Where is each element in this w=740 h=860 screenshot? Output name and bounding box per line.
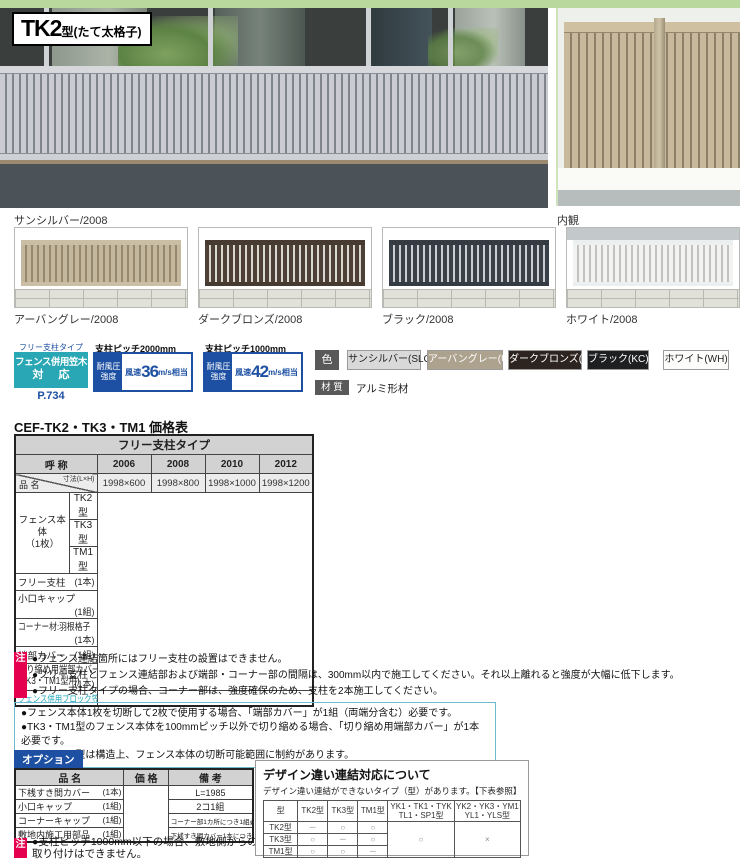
fence-body-label: フェンス本体（1枚）	[15, 493, 69, 574]
block-wall	[15, 289, 187, 307]
block-wall	[567, 289, 739, 307]
size-cell: 1998×600	[97, 474, 151, 493]
item-row: 小口キャップ(1組)	[15, 591, 97, 619]
main-photo-caption: サンシルバー/2008	[14, 212, 108, 228]
note-line: ●フリー支柱タイプの場合、コーナー部は、強度確保のため、支柱を2本施工してくださ…	[32, 684, 732, 700]
color-row-label: 色	[315, 350, 339, 370]
dp-cell: －	[328, 834, 358, 846]
interior-concrete-base	[558, 190, 740, 206]
block-wall	[383, 289, 555, 307]
variant-fence	[21, 240, 181, 286]
variant-photo-urban-grey	[14, 227, 188, 308]
opt-header: 品 名	[15, 769, 124, 786]
color-chip-sun-silver: サンシルバー(SLC)	[347, 350, 421, 370]
name-header: 呼 称	[15, 455, 97, 474]
page-reference: P.734	[14, 390, 88, 402]
item-row: コーナー材:羽根格子(1本)	[15, 619, 97, 647]
color-chip-black: ブラック(KC)	[587, 350, 649, 370]
col-header: 2012	[259, 455, 313, 474]
note-badge: 注	[14, 838, 27, 858]
interior-fence-post	[654, 18, 665, 186]
fence-post	[208, 8, 213, 74]
product-title-badge: TK2型(たて太格子)	[12, 12, 152, 46]
size-header: 寸法(L×H)	[63, 474, 95, 484]
main-product-photo: TK2型(たて太格子)	[0, 8, 548, 208]
material-row-label: 材 質	[315, 380, 349, 395]
catalog-page: TK2型(たて太格子) サンシルバー/2008 内観 アーバングレー/2008 …	[0, 0, 740, 860]
note-badge: 注	[14, 652, 27, 698]
free-post-type-header: フリー支柱タイプ	[15, 435, 313, 455]
vertical-lattice-fence	[0, 66, 548, 160]
dp-merged-cell: ○	[388, 822, 454, 858]
design-panel-title: デザイン違い連結対応について	[263, 766, 521, 783]
variant-caption: ホワイト/2008	[566, 311, 638, 327]
dp-merged-cell: ×	[454, 822, 520, 858]
opt-row-name: コーナーキャップ(1組)	[15, 814, 124, 828]
variant-fence	[205, 240, 365, 286]
variant-fence	[389, 240, 549, 286]
dp-col-header-wide: YK2・YK3・YM1YL1・YLS型	[454, 801, 520, 822]
fence-post	[448, 8, 453, 74]
wind-resistance-title: 耐風圧強度	[205, 354, 232, 390]
item-size-corner-cell: 品 名 寸法(L×H)	[15, 474, 97, 493]
primary-notes: ●フェンス連結箇所にはフリー支柱の設置はできません。 ●フリー支柱とフェンス連結…	[32, 652, 732, 700]
fence-type-cell: TK3型	[69, 520, 97, 547]
col-header: 2008	[151, 455, 205, 474]
size-cell: 1998×1000	[205, 474, 259, 493]
options-section-label: オプション	[14, 750, 83, 769]
variant-photo-dark-bronze	[198, 227, 372, 308]
opt-header: 価 格	[124, 769, 168, 786]
note-line: ●フェンス連結箇所にはフリー支柱の設置はできません。	[32, 652, 732, 668]
product-model: TK2	[21, 15, 61, 41]
interior-wall	[558, 168, 740, 190]
color-chip-dark-bronze: ダークブロンズ(BD)	[508, 350, 582, 370]
dp-cell: ○	[358, 822, 388, 834]
opt-row-name: 下桟すき間カバー(1本)	[15, 786, 124, 800]
fence-kasagi-support-badge: フェンス併用笠木 対 応	[14, 352, 88, 388]
front-wall	[0, 164, 548, 208]
design-compatibility-panel: デザイン違い連結対応について デザイン違い連結ができないタイプ（型）があります。…	[255, 760, 529, 856]
fence-post	[366, 8, 371, 74]
color-chip-white: ホワイト(WH)	[663, 350, 729, 370]
sky-band	[567, 228, 739, 240]
dp-cell: ○	[298, 846, 328, 858]
dp-cell: －	[358, 846, 388, 858]
dp-col-header: TK3型	[328, 801, 358, 822]
item-row: フリー支柱(1本)	[15, 574, 97, 591]
variant-caption: アーバングレー/2008	[14, 311, 118, 327]
col-header: 2006	[97, 455, 151, 474]
wind-resistance-badge: 耐風圧強度 風速42m/s相当	[203, 352, 303, 392]
wind-speed-value: 風速42m/s相当	[232, 354, 301, 390]
wind-speed-value: 風速36m/s相当	[122, 354, 191, 390]
variant-caption: ブラック/2008	[382, 311, 454, 327]
interior-fence	[564, 22, 740, 168]
opt-remark: L=1985	[168, 786, 253, 800]
size-cell: 1998×800	[151, 474, 205, 493]
variant-fence	[573, 240, 733, 286]
product-type-label: 型(たて太格子)	[61, 25, 141, 39]
dp-corner: 型	[264, 801, 298, 822]
design-panel-subtitle: デザイン違い連結ができないタイプ（型）があります。【下表参照】	[263, 785, 521, 797]
design-compatibility-table: 型 TK2型 TK3型 TM1型 YK1・TK1・TYKTL1・SP1型 YK2…	[263, 800, 521, 858]
opt-remark: コーナー部1カ所につき1組必要	[168, 814, 253, 828]
dp-col-header: TM1型	[358, 801, 388, 822]
dp-cell: ○	[358, 834, 388, 846]
variant-photo-white	[566, 227, 740, 308]
fence-type-cell: TK2型	[69, 493, 97, 520]
dp-cell: －	[298, 822, 328, 834]
material-value: アルミ形材	[356, 381, 408, 396]
dp-cell: ○	[328, 822, 358, 834]
options-note: ●支柱ピッチ1000mm以下の場合、敷地側からの 取り付けはできません。	[32, 836, 262, 860]
note-line: ●フェンス本体1枚を切断して2枚で使用する場合、「端部カバー」が1組（両端分含む…	[21, 707, 489, 721]
interior-photo-caption: 内観	[557, 212, 579, 228]
opt-row-name: 小口キャップ(1組)	[15, 800, 124, 814]
secondary-notes-box: ●フェンス本体1枚を切断して2枚で使用する場合、「端部カバー」が1組（両端分含む…	[14, 702, 496, 768]
item-header: 品 名	[19, 478, 40, 491]
kasagi-line1: フェンス併用笠木	[14, 357, 88, 369]
dp-row-label: TM1型	[264, 846, 298, 858]
variant-caption: ダークブロンズ/2008	[198, 311, 302, 327]
note-line: ●フリー支柱とフェンス連結部および端部・コーナー部の間隔は、300mm以内で施工…	[32, 668, 732, 684]
dp-row-label: TK3型	[264, 834, 298, 846]
kasagi-line2: 対 応	[14, 369, 88, 383]
dp-cell: ○	[298, 834, 328, 846]
size-cell: 1998×1200	[259, 474, 313, 493]
opt-remark: 2コ1組	[168, 800, 253, 814]
building-window	[372, 8, 432, 70]
options-table: 品 名 価 格 備 考 下桟すき間カバー(1本) L=1985 小口キャップ(1…	[14, 768, 254, 843]
block-wall	[199, 289, 371, 307]
dp-col-header-wide: YK1・TK1・TYKTL1・SP1型	[388, 801, 454, 822]
fence-type-cell: TM1型	[69, 547, 97, 574]
interior-view-photo	[556, 8, 740, 206]
col-header: 2010	[205, 455, 259, 474]
top-accent-bar	[0, 0, 740, 8]
variant-photo-black	[382, 227, 556, 308]
note-line: ●TK3・TM1型のフェンス本体を100mmピッチ以外で切り縮める場合、「切り縮…	[21, 721, 489, 749]
color-chip-urban-grey: アーバングレー(UC)	[427, 350, 503, 370]
opt-price-blank	[124, 786, 168, 843]
dp-cell: ○	[328, 846, 358, 858]
wind-resistance-badge: 耐風圧強度 風速36m/s相当	[93, 352, 193, 392]
dp-col-header: TK2型	[298, 801, 328, 822]
dp-row-label: TK2型	[264, 822, 298, 834]
opt-header: 備 考	[168, 769, 253, 786]
wind-resistance-title: 耐風圧強度	[95, 354, 122, 390]
